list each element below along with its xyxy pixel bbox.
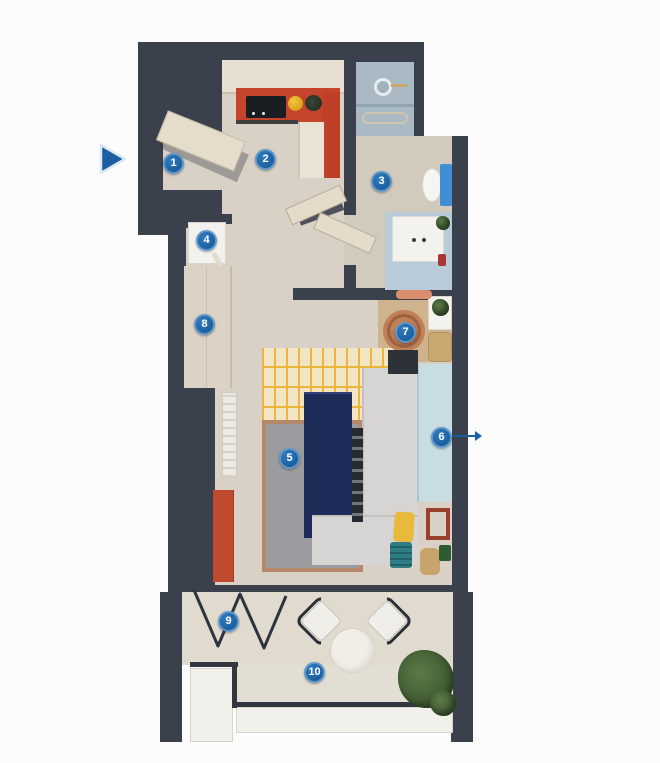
shower-glass: [356, 104, 414, 107]
marker-7[interactable]: 7: [395, 322, 416, 343]
shelf-plant: [432, 299, 449, 316]
pillow-yellow: [393, 511, 415, 542]
shower-head: [374, 78, 392, 96]
entrance-arrow-icon: [96, 142, 130, 176]
throw-teal: [390, 542, 412, 568]
cooktop-knob: [262, 112, 265, 115]
marker-8[interactable]: 8: [194, 314, 215, 335]
terrace-parapet-left: [190, 668, 233, 742]
vanity-red-accent: [438, 254, 446, 266]
shower-arm: [391, 84, 407, 87]
towel-rail: [362, 112, 408, 124]
green-accent: [439, 545, 451, 561]
marker-6-leader-line: [452, 435, 476, 437]
tray-table-red: [426, 508, 450, 540]
marker-3[interactable]: 3: [371, 171, 392, 192]
terrace-plant-small: [430, 690, 456, 716]
toilet-tank: [440, 164, 452, 206]
radiator: [222, 392, 237, 478]
cooktop-knob: [252, 112, 255, 115]
desk-chair: [428, 332, 452, 362]
marker-4[interactable]: 4: [196, 230, 217, 251]
folding-door: [188, 588, 292, 668]
vanity-faucet: [422, 238, 426, 242]
kitchen-tall-unit: [322, 92, 340, 178]
counter-edge: [236, 120, 298, 124]
shower-floor: [356, 62, 414, 136]
wall-terrace-left: [160, 592, 182, 742]
marker-6-leader-arrowhead: [475, 431, 482, 441]
marker-1[interactable]: 1: [163, 153, 184, 174]
vanity-faucet: [412, 238, 416, 242]
marker-5[interactable]: 5: [279, 448, 300, 469]
side-table-dark: [388, 350, 418, 374]
wall-terrace-right: [451, 592, 473, 742]
marker-6[interactable]: 6: [431, 427, 452, 448]
marker-10[interactable]: 10: [304, 662, 325, 683]
toilet-bowl: [422, 168, 442, 202]
cooking-pot: [305, 95, 322, 111]
marker-9[interactable]: 9: [218, 611, 239, 632]
terrace-table: [330, 628, 375, 673]
floorplan-canvas: 12345678910: [0, 0, 660, 763]
terrace-parapet-bottom: [236, 707, 453, 733]
tv-cabinet-red: [213, 490, 234, 582]
console-tray: [396, 290, 432, 299]
sofa-armrest-slats: [352, 428, 363, 522]
vanity-plant: [436, 216, 450, 230]
marker-2[interactable]: 2: [255, 149, 276, 170]
stool-wood: [420, 548, 440, 575]
kitchen-island: [298, 122, 324, 178]
fruit-bowl: [288, 96, 303, 111]
sofa-seat-vertical: [362, 368, 418, 518]
